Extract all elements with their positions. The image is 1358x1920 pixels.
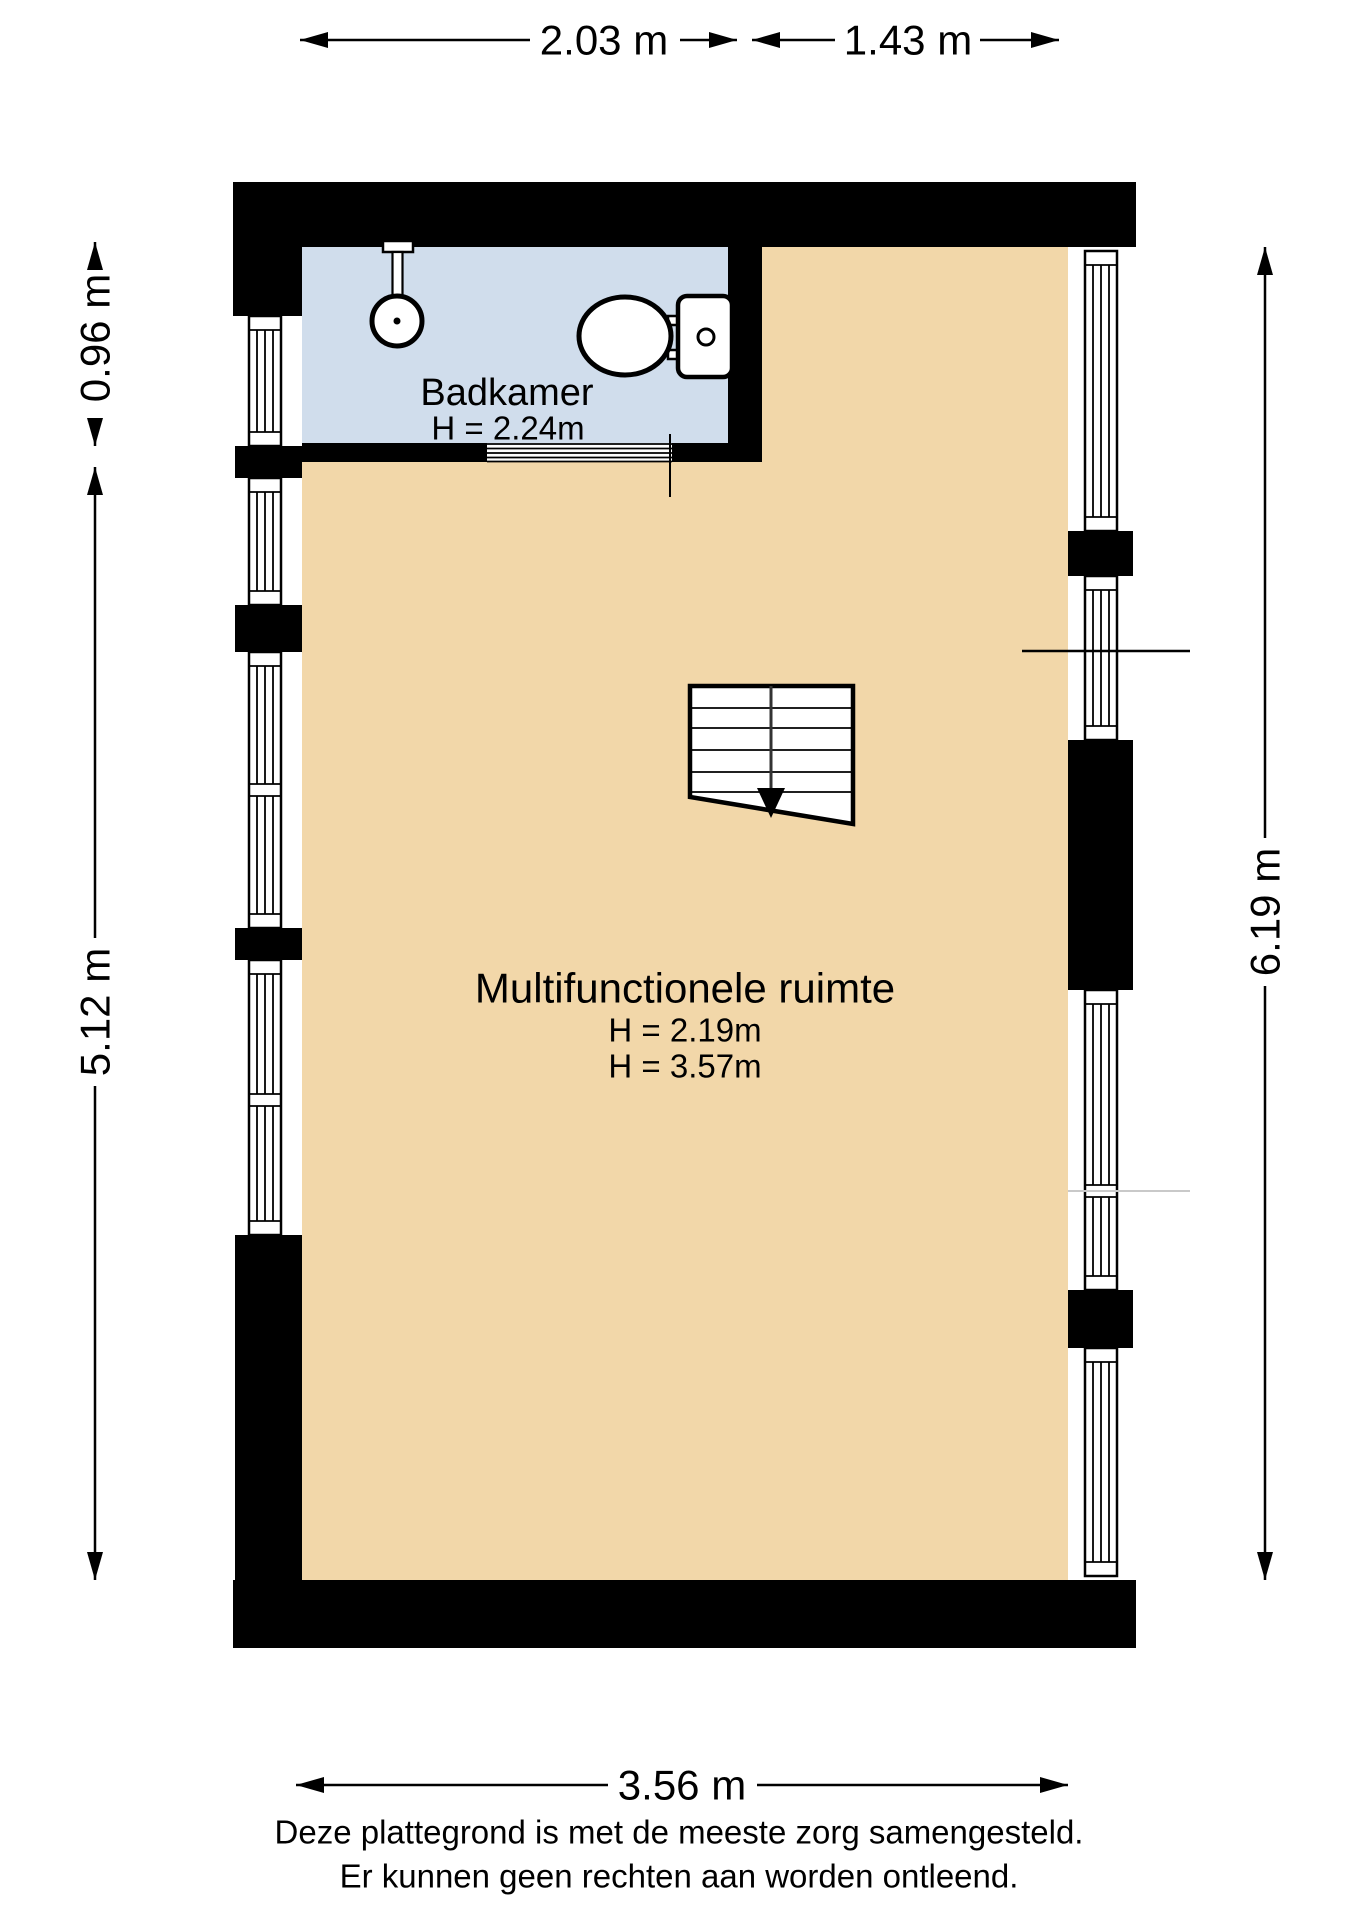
dimension-right-total-height: 6.19 m xyxy=(1242,247,1289,1580)
wall-right-block xyxy=(1068,740,1133,990)
wall-bathroom-bottom-right xyxy=(672,443,728,462)
arrow-right-icon xyxy=(1040,1777,1068,1793)
bathroom-height-label: H = 2.24m xyxy=(431,410,584,447)
floor-plan-canvas: Badkamer H = 2.24m Multifunctionele ruim… xyxy=(0,0,1358,1920)
dimension-top-bathroom-width: 2.03 m xyxy=(300,17,737,64)
disclaimer-line-1: Deze plattegrond is met de meeste zorg s… xyxy=(275,1814,1084,1851)
disclaimer-line-2: Er kunnen geen rechten aan worden ontlee… xyxy=(340,1858,1019,1895)
arrow-up-icon xyxy=(87,467,103,495)
dimension-top-right-width: 1.43 m xyxy=(752,17,1059,64)
dimension-label: 6.19 m xyxy=(1242,848,1289,976)
toilet-bowl xyxy=(579,297,671,375)
arrow-up-icon xyxy=(87,242,103,270)
wall-right-pier-2 xyxy=(1068,1290,1133,1348)
floor-plan-page: Badkamer H = 2.24m Multifunctionele ruim… xyxy=(0,0,1358,1920)
window-right-2 xyxy=(1085,576,1117,740)
dimension-label: 2.03 m xyxy=(540,17,668,64)
arrow-right-icon xyxy=(1031,32,1059,48)
main-room-label: Multifunctionele ruimte xyxy=(475,965,895,1012)
wall-right-pier-1 xyxy=(1068,531,1133,576)
main-room-height-label-1: H = 2.19m xyxy=(608,1012,761,1049)
toilet-flush-button xyxy=(698,329,714,345)
wall-bottom xyxy=(233,1580,1136,1648)
arrow-down-icon xyxy=(1257,1552,1273,1580)
arrow-left-icon xyxy=(300,32,328,48)
wall-left-pier-3 xyxy=(235,928,302,960)
dimension-label: 5.12 m xyxy=(72,948,119,1076)
dimension-left-bathroom-height: 0.96 m xyxy=(72,242,119,446)
disclaimer: Deze plattegrond is met de meeste zorg s… xyxy=(275,1814,1084,1895)
wall-top xyxy=(233,182,1136,247)
arrow-left-icon xyxy=(752,32,780,48)
wall-top-left-corner xyxy=(233,182,302,316)
wall-left-pier-1 xyxy=(235,446,302,478)
bathroom-label: Badkamer xyxy=(420,372,594,414)
dimension-bottom-total-width: 3.56 m xyxy=(296,1762,1068,1809)
dimension-label: 1.43 m xyxy=(844,17,972,64)
shower-mount xyxy=(383,241,413,252)
dimension-left-room-height: 5.12 m xyxy=(72,467,119,1580)
toilet-icon xyxy=(579,296,732,377)
window-right-1 xyxy=(1085,251,1117,531)
window-left-4 xyxy=(249,960,281,1235)
arrow-right-icon xyxy=(709,32,737,48)
window-right-4 xyxy=(1085,1348,1117,1576)
shower-head-center xyxy=(394,318,401,325)
stairs-icon xyxy=(690,686,853,824)
arrow-left-icon xyxy=(296,1777,324,1793)
main-room-height-label-2: H = 3.57m xyxy=(608,1048,761,1085)
window-left-1 xyxy=(249,316,281,446)
arrow-down-icon xyxy=(87,418,103,446)
arrow-up-icon xyxy=(1257,247,1273,275)
wall-left-pier-2 xyxy=(235,605,302,652)
arrow-down-icon xyxy=(87,1552,103,1580)
window-right-3 xyxy=(1085,990,1117,1290)
window-left-2 xyxy=(249,478,281,605)
dimension-label: 3.56 m xyxy=(618,1762,746,1809)
dimension-label: 0.96 m xyxy=(72,274,119,402)
window-left-3 xyxy=(249,652,281,928)
